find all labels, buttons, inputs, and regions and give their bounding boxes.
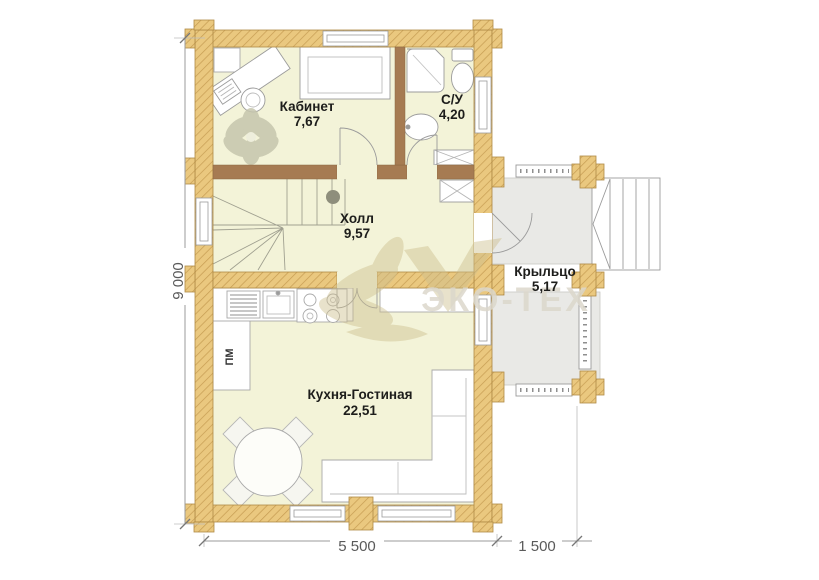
hall-duct-box <box>440 180 474 202</box>
label-holl-area: 9,57 <box>344 226 370 241</box>
log-end <box>492 504 502 523</box>
porch-stairs-outline <box>592 178 660 270</box>
sink-tap <box>406 125 410 129</box>
label-kryltso: Крыльцо <box>514 264 575 279</box>
label-kabinet-area: 7,67 <box>294 114 320 129</box>
label-dishwasher: ПМ <box>224 348 236 365</box>
log-joint-bottom <box>349 497 373 530</box>
log-end <box>194 522 214 532</box>
burner-inner <box>307 313 313 319</box>
toilet-tank <box>452 49 473 61</box>
wall-hall-north-mid <box>377 165 407 179</box>
label-su: С/У <box>441 92 464 107</box>
window-kitchen-south-1-glass <box>294 510 341 517</box>
log-end <box>492 157 504 187</box>
desk-chair-seat <box>246 93 260 107</box>
log-end <box>185 504 195 523</box>
log-end <box>492 29 502 48</box>
plant-leaf <box>242 139 260 165</box>
wall-left <box>195 30 213 522</box>
watermark-text: ЭКО-ТЕХ <box>421 281 591 319</box>
plant-center <box>246 132 256 142</box>
label-kryltso-area: 5,17 <box>532 279 558 294</box>
wall-hall-north-left <box>213 165 337 179</box>
dim-width-main: 5 500 <box>338 538 376 555</box>
porch-stairs <box>592 178 660 270</box>
floor-plan-page: ЭКО-ТЕХ Кабинет 7,67 С/У 4,20 Холл 9,57 … <box>0 0 819 580</box>
label-kitchen-area: 22,51 <box>343 403 377 418</box>
log-end <box>473 20 493 30</box>
log-end <box>185 158 195 184</box>
corner-shower <box>407 49 444 92</box>
wall-hall-south-left <box>213 272 337 288</box>
porch-post-bar <box>580 156 596 188</box>
log-end <box>492 372 504 402</box>
label-su-area: 4,20 <box>439 107 465 122</box>
wall-study-bath <box>395 47 405 165</box>
staircase-newel-post <box>326 190 340 204</box>
floor-plan-drawing: ЭКО-ТЕХ Кабинет 7,67 С/У 4,20 Холл 9,57 … <box>0 0 819 580</box>
kitchen-sink-basin <box>267 296 290 314</box>
dining-table <box>234 428 302 496</box>
label-kabinet: Кабинет <box>280 99 335 114</box>
study-sofa-cushion <box>308 57 382 93</box>
door-opening-bath <box>407 165 437 179</box>
window-hall-glass <box>200 202 208 241</box>
log-end <box>194 20 214 30</box>
window-study-glass <box>327 35 384 42</box>
door-opening-study <box>337 165 377 179</box>
label-kitchen: Кухня-Гостиная <box>308 387 413 402</box>
porch-deck-upper <box>492 178 600 264</box>
dim-height: 9 000 <box>170 262 187 300</box>
kitchen-tap <box>276 291 280 295</box>
plant-leaf <box>242 108 260 136</box>
dim-width-porch: 1 500 <box>518 538 556 555</box>
toilet-bowl <box>452 63 474 93</box>
burner <box>304 294 316 306</box>
porch-post-bar <box>580 371 596 403</box>
wall-hall-north-right <box>437 165 474 179</box>
log-end <box>185 29 195 48</box>
label-holl: Холл <box>340 211 374 226</box>
window-bath-glass <box>479 81 487 129</box>
window-kitchen-south-2-glass <box>382 510 451 517</box>
log-end <box>473 522 493 532</box>
study-side-table <box>214 48 240 72</box>
